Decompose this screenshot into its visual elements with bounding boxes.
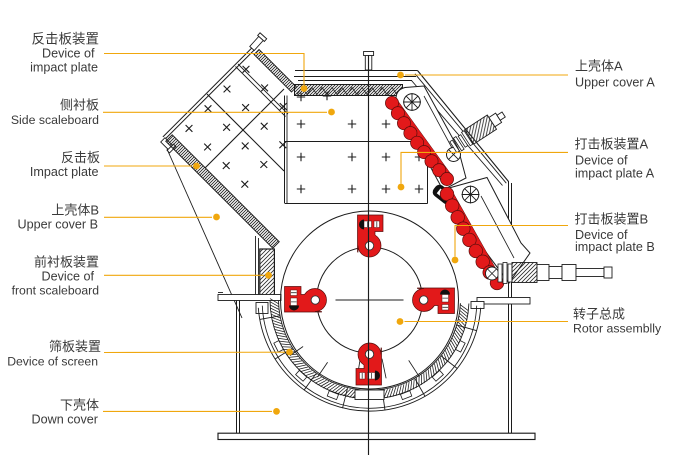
svg-text:Device of screen: Device of screen bbox=[7, 355, 98, 369]
svg-text:Device of: Device of bbox=[575, 154, 628, 168]
svg-text:Device of: Device of bbox=[42, 47, 95, 61]
svg-text:Upper cover B: Upper cover B bbox=[18, 218, 99, 232]
svg-text:侧衬板: 侧衬板 bbox=[60, 98, 99, 113]
svg-text:筛板装置: 筛板装置 bbox=[49, 339, 101, 354]
svg-text:反击板装置: 反击板装置 bbox=[32, 32, 100, 47]
svg-text:impact plate: impact plate bbox=[30, 61, 98, 75]
svg-text:下壳体: 下壳体 bbox=[60, 398, 99, 413]
svg-text:Side scaleboard: Side scaleboard bbox=[11, 113, 99, 127]
svg-text:上壳体A: 上壳体A bbox=[575, 59, 623, 74]
svg-text:Down cover: Down cover bbox=[32, 413, 99, 427]
svg-text:Device of: Device of bbox=[42, 270, 95, 284]
svg-text:转子总成: 转子总成 bbox=[573, 307, 625, 322]
svg-text:Rotor assemblly: Rotor assemblly bbox=[573, 322, 662, 336]
svg-text:impact plate A: impact plate A bbox=[575, 167, 655, 181]
svg-text:Impact plate: Impact plate bbox=[30, 165, 99, 179]
svg-text:前衬板装置: 前衬板装置 bbox=[34, 255, 99, 270]
svg-text:front scaleboard: front scaleboard bbox=[12, 284, 99, 298]
svg-text:impact plate B: impact plate B bbox=[575, 240, 655, 254]
svg-text:Upper cover A: Upper cover A bbox=[575, 76, 655, 90]
svg-text:打击板装置B: 打击板装置B bbox=[575, 212, 649, 227]
svg-text:反击板: 反击板 bbox=[61, 150, 100, 165]
svg-text:打击板装置A: 打击板装置A bbox=[575, 137, 649, 152]
svg-text:上壳体B: 上壳体B bbox=[51, 203, 99, 218]
